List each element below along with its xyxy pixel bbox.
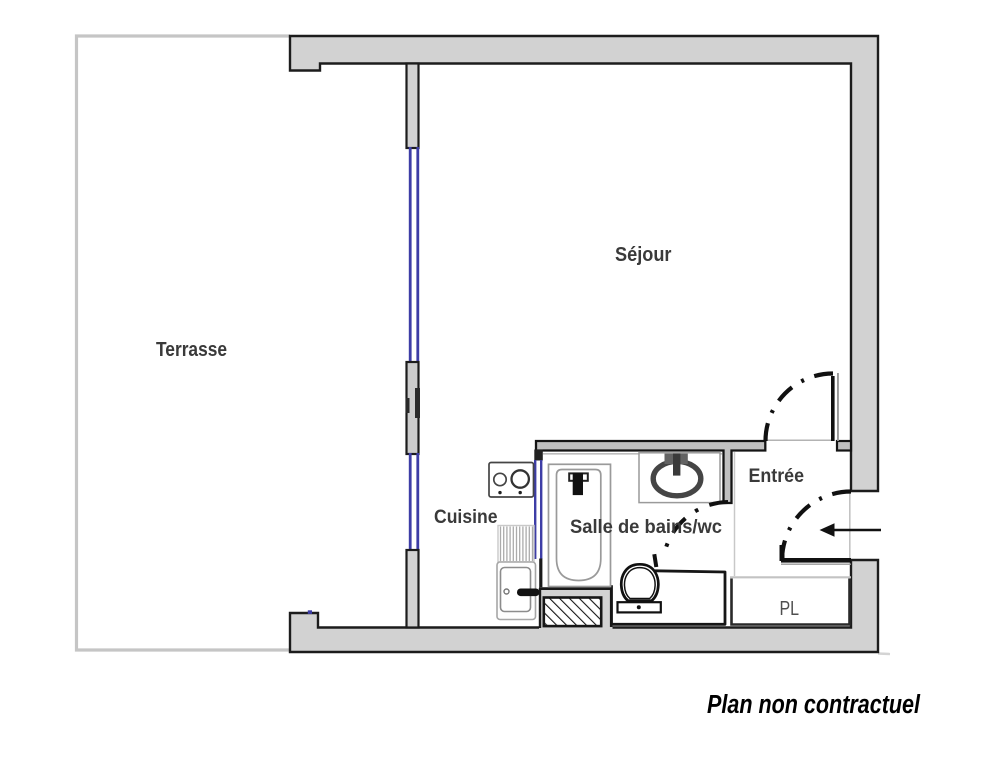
svg-text:Entrée: Entrée xyxy=(749,465,805,487)
svg-text:Salle de bains/wc: Salle de bains/wc xyxy=(570,516,722,538)
svg-text:Plan non contractuel: Plan non contractuel xyxy=(707,691,921,719)
svg-text:Terrasse: Terrasse xyxy=(156,338,227,361)
svg-text:PL: PL xyxy=(780,598,800,620)
svg-text:Cuisine: Cuisine xyxy=(434,506,498,528)
svg-text:Séjour: Séjour xyxy=(615,243,672,266)
